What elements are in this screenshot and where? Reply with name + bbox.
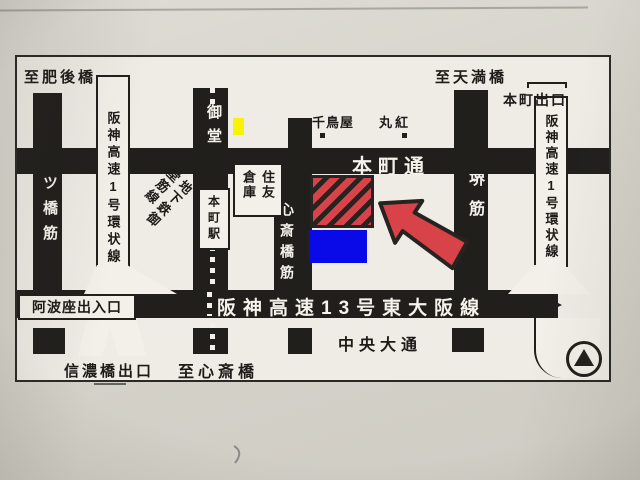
subway-dotted-line — [207, 292, 212, 316]
edge-label-shinsaibashi: 至心斎橋 — [178, 358, 258, 382]
road-label-sakaisuji: 堺筋 — [462, 170, 486, 230]
photographed-access-map: { "colors": { "road_black": "#201f1c", "… — [0, 0, 640, 480]
awaza-ramp-label: 阿波座出入口 — [32, 297, 122, 317]
subway-dotted-line — [210, 246, 215, 288]
awaza-ramp-box: 阿波座出入口 — [18, 294, 136, 320]
shinanobashi-exit-label: 信濃橋出口 — [64, 360, 154, 381]
road-hanshin-loop-east: 阪神高速1号環状線 — [534, 96, 568, 267]
north-compass-icon — [566, 341, 602, 377]
destination-highlight — [310, 175, 374, 228]
paper-edge-line — [0, 6, 588, 11]
map-frame: 四ツ橋筋 御堂筋 心斎橋筋 堺筋 本町通 阪神高速13号東大阪線 中央大通 阪神… — [15, 55, 611, 382]
ramp-east-flare — [508, 265, 590, 294]
subway-line-label-text: 地下鉄御堂筋線 — [126, 164, 195, 233]
subway-dotted-line — [210, 323, 215, 355]
blue-annotation-marker — [309, 230, 367, 263]
road-hanshin-loop-west: 阪神高速1号環状線 — [96, 75, 130, 269]
yellow-annotation-marker — [233, 118, 244, 135]
north-triangle-icon — [574, 349, 594, 366]
edge-label-higobashi: 至肥後橋 — [24, 66, 96, 87]
road-shinsaibashisuji-stub — [288, 328, 312, 354]
landmark-dot — [402, 133, 407, 138]
road-label-hanshin-loop-west: 阪神高速1号環状線 — [104, 111, 123, 269]
road-yotsubashisuji: 四ツ橋筋 — [33, 93, 62, 290]
road-label-hanshin-loop-east: 阪神高速1号環状線 — [542, 114, 561, 267]
road-sakaisuji-stub — [452, 328, 484, 352]
exit-bracket-line — [527, 82, 567, 88]
ramp-black-wedge — [540, 294, 562, 316]
honmachi-exit-label: 本町出口 — [503, 90, 567, 110]
sumitomo-warehouse-label: 住友倉庫 — [239, 170, 277, 210]
ramp-west-prongs — [78, 318, 146, 356]
shinanobashi-underline — [94, 383, 126, 385]
edge-label-temmabashi: 至天満橋 — [435, 66, 507, 87]
landmark-marubeni: 丸紅 — [379, 112, 411, 131]
stray-pen-mark — [228, 444, 250, 466]
road-label-chuo-odori: 中央大通 — [338, 331, 422, 355]
road-shinsaibashisuji-upper — [288, 118, 312, 150]
landmark-chidoriya: 千鳥屋 — [312, 112, 354, 131]
sumitomo-warehouse-box: 住友倉庫 — [233, 163, 283, 217]
road-label-hanshin-13: 阪神高速13号東大阪線 — [217, 293, 486, 320]
road-yotsubashisuji-stub — [33, 328, 65, 354]
landmark-dot — [320, 133, 325, 138]
subway-dotted-line — [210, 88, 215, 106]
